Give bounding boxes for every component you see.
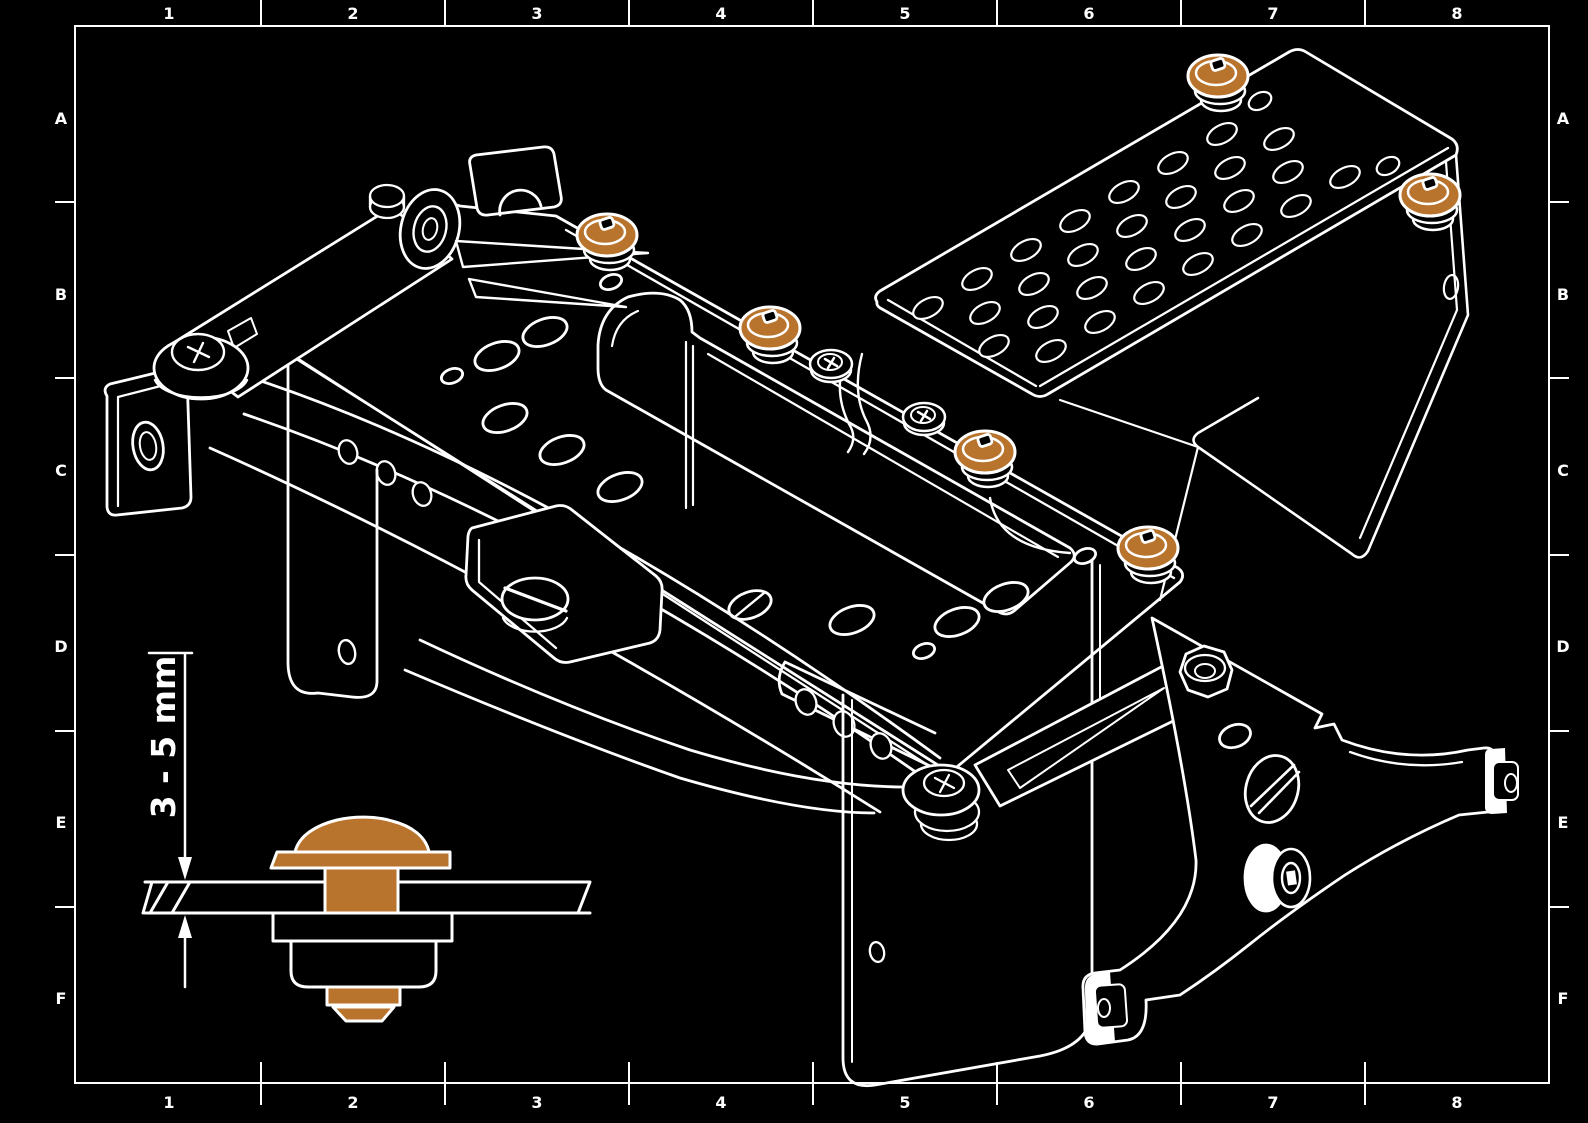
row-label-left: A (55, 109, 68, 128)
row-label-left: F (56, 989, 67, 1008)
col-label-top: 1 (163, 4, 174, 23)
col-label-top: 4 (715, 4, 726, 23)
row-label-right: E (1558, 813, 1569, 832)
col-label-bottom: 4 (715, 1093, 726, 1112)
dimension-label: 3 - 5 mm (144, 656, 183, 819)
col-label-top: 6 (1083, 4, 1094, 23)
retainer-body (291, 941, 436, 987)
grommet-detail-view: 3 - 5 mm (143, 653, 590, 1021)
col-label-bottom: 1 (163, 1093, 174, 1112)
col-label-top: 7 (1267, 4, 1278, 23)
row-label-left: D (54, 637, 67, 656)
small-hole (410, 480, 435, 508)
col-label-top: 8 (1451, 4, 1462, 23)
ear-hole (1098, 999, 1110, 1017)
row-label-right: B (1557, 285, 1569, 304)
col-label-top: 2 (347, 4, 358, 23)
retainer-washer (273, 913, 452, 941)
grommet-flange (271, 852, 450, 868)
row-label-right: F (1558, 989, 1569, 1008)
small-hole (336, 438, 361, 466)
col-label-bottom: 5 (899, 1093, 910, 1112)
support-plate (288, 352, 377, 697)
support-plate-hole (337, 639, 358, 666)
col-label-bottom: 6 (1083, 1093, 1094, 1112)
grommet-tip-lower (333, 1007, 394, 1021)
drawing-sheet: 1 2 3 4 5 6 7 8 1 2 3 4 5 6 7 8 A B C D … (0, 0, 1588, 1123)
side-bushing (1245, 845, 1310, 911)
row-label-left: B (55, 285, 67, 304)
col-label-bottom: 3 (531, 1093, 542, 1112)
grommet-dome (295, 817, 429, 852)
snap-grommet-icon (1188, 55, 1248, 111)
col-label-bottom: 8 (1451, 1093, 1462, 1112)
col-label-top: 3 (531, 4, 542, 23)
row-label-left: E (56, 813, 67, 832)
dimension-arrow-down (178, 857, 192, 880)
screw-head (903, 403, 945, 435)
grommet-tip-upper (327, 987, 400, 1005)
ear-hole (1505, 774, 1517, 792)
dimension-annotation: 3 - 5 mm (144, 653, 192, 987)
grommet-shank (325, 868, 398, 913)
hex-pivot-bushing (1180, 646, 1232, 697)
col-label-top: 5 (899, 4, 910, 23)
col-label-bottom: 7 (1267, 1093, 1278, 1112)
pivot-bracket (470, 147, 562, 215)
dimension-arrow-up (178, 915, 192, 938)
col-label-bottom: 2 (347, 1093, 358, 1112)
row-label-left: C (55, 461, 67, 480)
support-plate-outline (288, 352, 377, 697)
small-hole (868, 941, 886, 963)
right-mount-ear (1485, 748, 1518, 814)
row-label-right: C (1557, 461, 1569, 480)
row-label-right: D (1556, 637, 1569, 656)
washer-stack (370, 185, 404, 218)
beam-holes (336, 438, 435, 508)
screw-head (810, 350, 852, 382)
row-label-right: A (1557, 109, 1570, 128)
